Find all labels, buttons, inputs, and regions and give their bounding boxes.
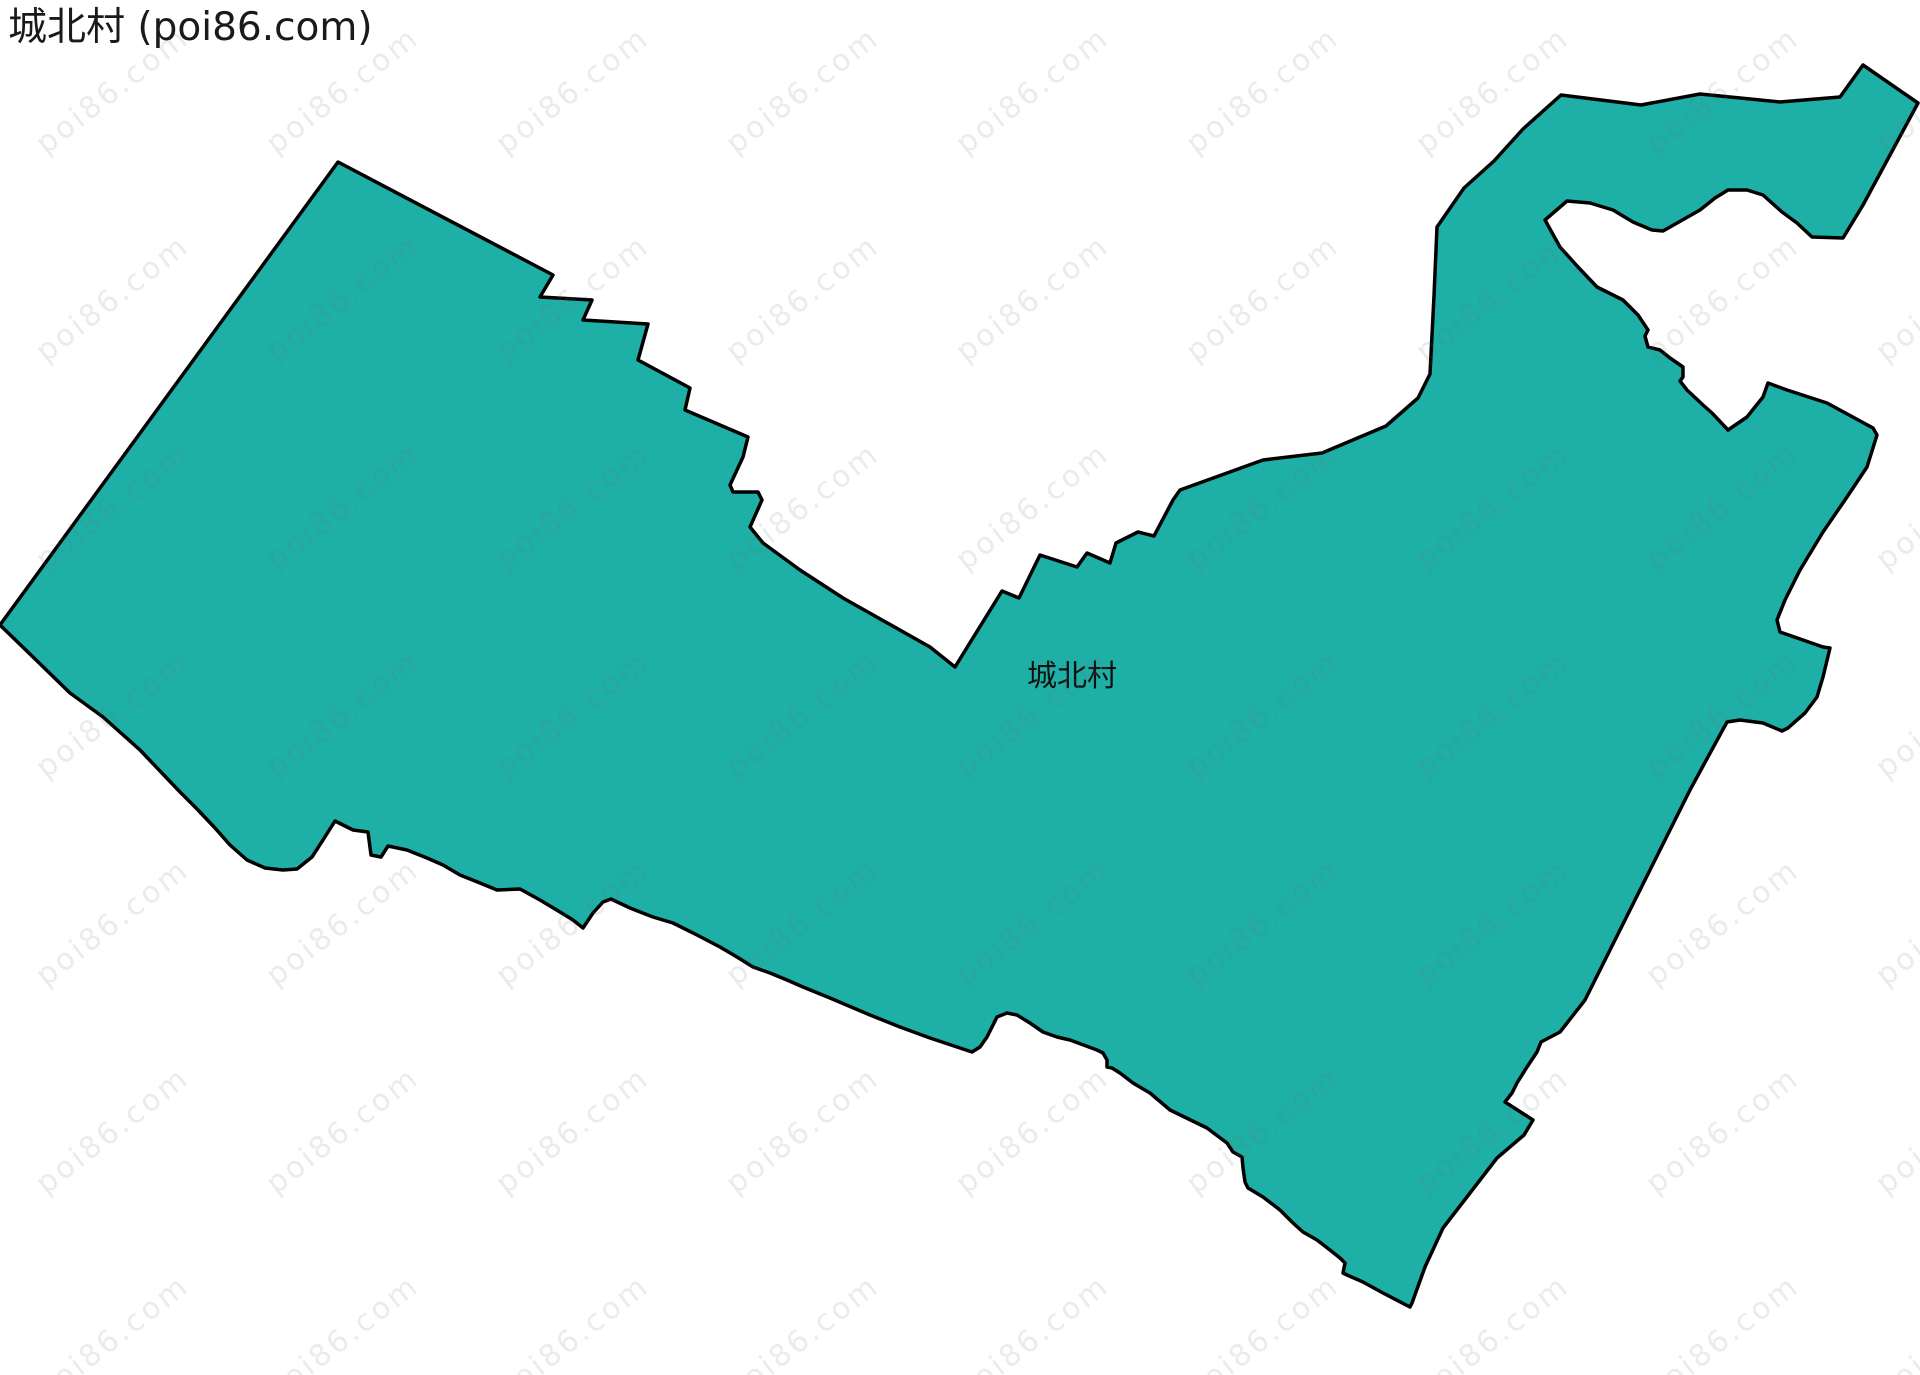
page-title: 城北村 (poi86.com) [8, 4, 373, 53]
region-label: 城北村 [1027, 659, 1117, 694]
map-canvas: 城北村 [0, 0, 1920, 1375]
map-page: 城北村 poi86.compoi86.compoi86.compoi86.com… [0, 0, 1920, 1375]
region-polygon-chengbei [0, 65, 1918, 1307]
